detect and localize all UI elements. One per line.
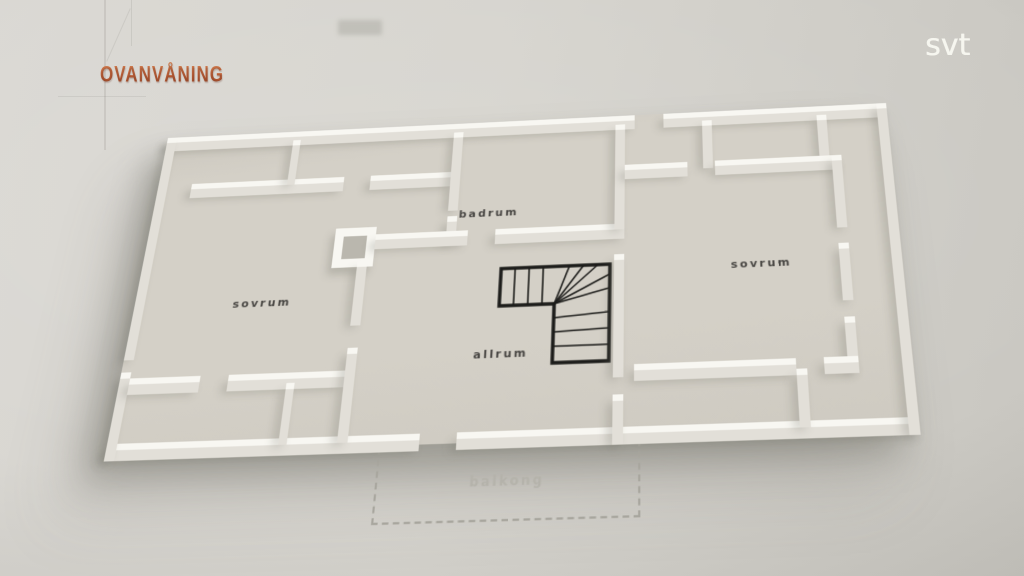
chimney-shaft-opening	[341, 236, 367, 260]
pencil-sketch-line	[106, 8, 131, 61]
pencil-sketch-line	[58, 96, 146, 97]
wall	[625, 162, 688, 174]
wall	[613, 254, 624, 371]
paper-smudge	[338, 20, 382, 35]
tv-graphic-scene: OVANVÅNING svt	[0, 0, 1024, 576]
wall	[702, 120, 713, 163]
wall	[612, 394, 623, 438]
svt-logo: svt	[925, 28, 970, 63]
pencil-sketch-line	[131, 0, 132, 46]
balcony-outline: balkong	[371, 439, 640, 525]
room-label-balkong: balkong	[469, 472, 545, 490]
wall	[128, 376, 200, 389]
floor-plan: sovrum badrum allrum sovrum balkong	[105, 103, 920, 455]
chimney-shaft	[331, 227, 377, 268]
page-title: OVANVÅNING	[100, 62, 224, 88]
wall	[614, 124, 625, 224]
wall	[824, 356, 859, 368]
